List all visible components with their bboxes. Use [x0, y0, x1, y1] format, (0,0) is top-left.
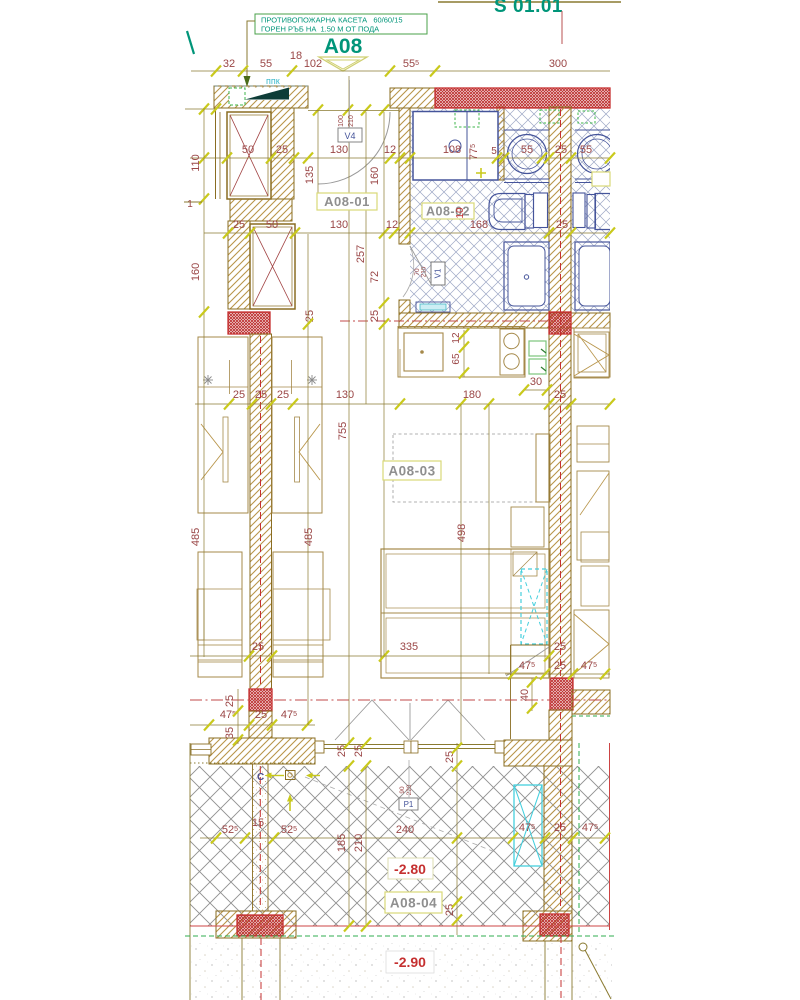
svg-text:25: 25 — [369, 310, 381, 322]
svg-text:130: 130 — [336, 389, 354, 401]
svg-text:12: 12 — [386, 219, 398, 231]
svg-text:55: 55 — [521, 144, 533, 156]
svg-text:130: 130 — [330, 144, 348, 156]
svg-text:ПРОТИВОПОЖАРНА КАСЕТА 60/60/: ПРОТИВОПОЖАРНА КАСЕТА 60/60/15 — [261, 16, 403, 25]
svg-text:P1: P1 — [404, 800, 414, 809]
svg-text:1: 1 — [187, 199, 193, 210]
svg-text:C: C — [257, 772, 264, 783]
svg-text:65: 65 — [451, 353, 462, 365]
svg-text:130: 130 — [330, 219, 348, 231]
svg-text:10: 10 — [455, 207, 466, 219]
svg-text:25: 25 — [554, 660, 566, 672]
svg-text:A08: A08 — [324, 35, 363, 58]
svg-text:485: 485 — [303, 528, 315, 546]
svg-text:160: 160 — [190, 263, 202, 281]
svg-text:90: 90 — [399, 786, 406, 794]
svg-text:25: 25 — [233, 389, 245, 401]
svg-text:25: 25 — [555, 144, 567, 156]
svg-text:25: 25 — [277, 389, 289, 401]
svg-text:335: 335 — [400, 641, 418, 653]
svg-text:V1: V1 — [434, 268, 443, 278]
svg-text:210: 210 — [353, 834, 365, 852]
svg-text:168: 168 — [470, 219, 488, 231]
svg-text:102: 102 — [304, 58, 322, 70]
svg-text:A08-04: A08-04 — [390, 895, 437, 910]
svg-text:210: 210 — [348, 115, 355, 127]
svg-text:S 01.01: S 01.01 — [494, 0, 563, 17]
svg-text:18: 18 — [290, 50, 302, 62]
svg-text:25: 25 — [233, 219, 245, 231]
svg-text:50: 50 — [266, 219, 278, 231]
svg-text:25: 25 — [554, 822, 566, 834]
svg-text:12: 12 — [451, 332, 462, 344]
svg-text:755: 755 — [337, 422, 349, 440]
svg-text:25: 25 — [252, 641, 264, 653]
svg-text:25: 25 — [224, 695, 236, 707]
svg-text:40: 40 — [519, 689, 531, 701]
svg-text:220: 220 — [406, 784, 413, 795]
svg-text:498: 498 — [456, 524, 468, 542]
svg-text:108: 108 — [443, 144, 461, 156]
svg-text:110: 110 — [190, 154, 202, 172]
svg-text:30: 30 — [530, 376, 542, 388]
svg-text:55: 55 — [580, 144, 592, 156]
svg-text:25: 25 — [556, 219, 568, 231]
svg-text:A08-03: A08-03 — [388, 463, 435, 478]
svg-text:25: 25 — [255, 709, 267, 721]
svg-text:25: 25 — [554, 389, 566, 401]
svg-text:-2.90: -2.90 — [394, 954, 426, 970]
svg-text:15: 15 — [252, 817, 264, 829]
svg-text:300: 300 — [549, 58, 567, 70]
svg-text:A08-01: A08-01 — [324, 194, 370, 209]
svg-text:32: 32 — [223, 58, 235, 70]
svg-text:35: 35 — [224, 727, 236, 739]
svg-text:25: 25 — [276, 144, 288, 156]
svg-text:ГОРЕН РЪБ НА 1.50 М ОТ ПОДА: ГОРЕН РЪБ НА 1.50 М ОТ ПОДА — [261, 25, 379, 34]
svg-text:50: 50 — [242, 144, 254, 156]
svg-text:240: 240 — [396, 824, 414, 836]
svg-text:ппк: ппк — [266, 76, 280, 86]
svg-text:180: 180 — [463, 389, 481, 401]
svg-text:135: 135 — [304, 166, 316, 184]
svg-text:V4: V4 — [344, 131, 355, 141]
svg-text:12: 12 — [384, 144, 396, 156]
svg-text:25: 25 — [255, 389, 267, 401]
svg-text:257: 257 — [355, 245, 367, 263]
svg-text:485: 485 — [190, 528, 202, 546]
svg-text:25: 25 — [554, 641, 566, 653]
svg-text:100: 100 — [338, 115, 345, 127]
svg-text:-2.80: -2.80 — [394, 861, 426, 877]
svg-text:5: 5 — [491, 146, 497, 157]
svg-text:185: 185 — [336, 834, 348, 852]
svg-text:55: 55 — [260, 58, 272, 70]
svg-text:160: 160 — [369, 167, 381, 185]
svg-text:72: 72 — [369, 271, 381, 283]
